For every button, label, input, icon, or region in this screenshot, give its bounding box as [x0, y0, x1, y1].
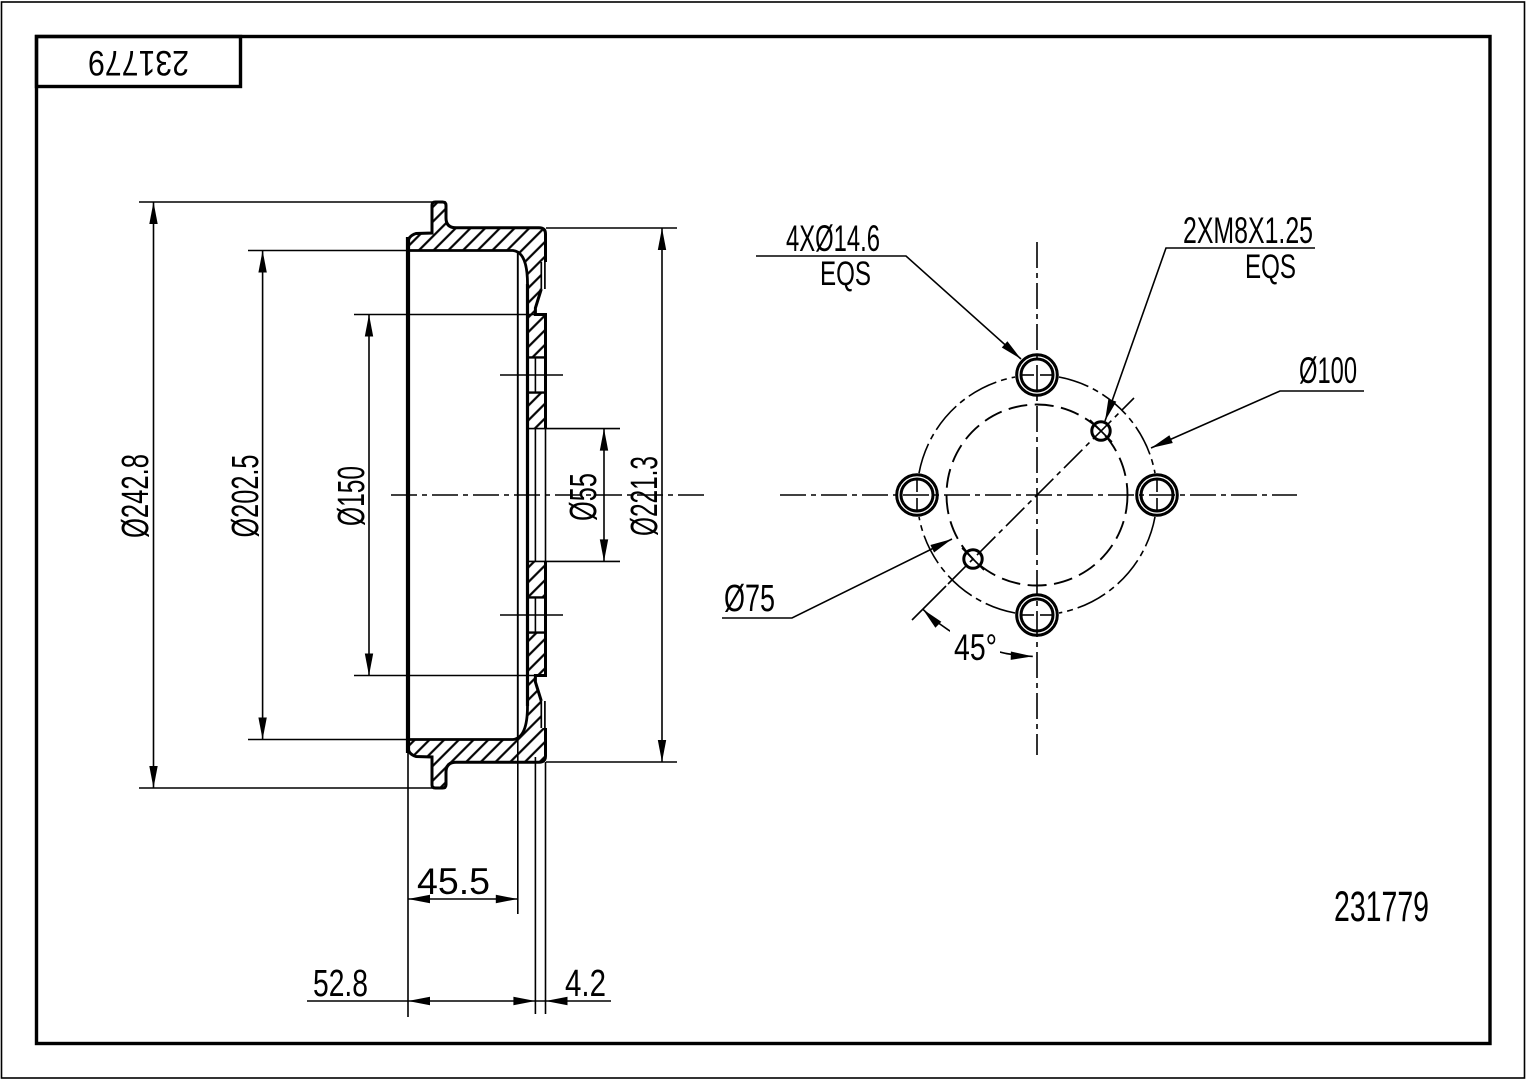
svg-text:4XØ14.6: 4XØ14.6 [786, 218, 880, 259]
svg-text:52.8: 52.8 [313, 963, 368, 1005]
svg-text:231779: 231779 [88, 43, 189, 82]
svg-text:2XM8X1.25: 2XM8X1.25 [1183, 210, 1313, 251]
svg-text:4.2: 4.2 [565, 963, 606, 1005]
svg-text:231779: 231779 [1334, 883, 1429, 931]
svg-text:Ø202.5: Ø202.5 [225, 455, 267, 538]
svg-text:EQS: EQS [1245, 248, 1296, 286]
svg-text:45°: 45° [954, 627, 997, 668]
svg-text:Ø150: Ø150 [331, 466, 373, 526]
svg-text:Ø75: Ø75 [724, 578, 775, 620]
svg-text:EQS: EQS [820, 255, 871, 293]
svg-text:Ø100: Ø100 [1299, 350, 1357, 391]
svg-text:45.5: 45.5 [417, 861, 490, 902]
svg-text:Ø242.8: Ø242.8 [115, 454, 157, 538]
svg-text:Ø221.3: Ø221.3 [624, 456, 666, 536]
svg-text:Ø55: Ø55 [563, 473, 605, 521]
